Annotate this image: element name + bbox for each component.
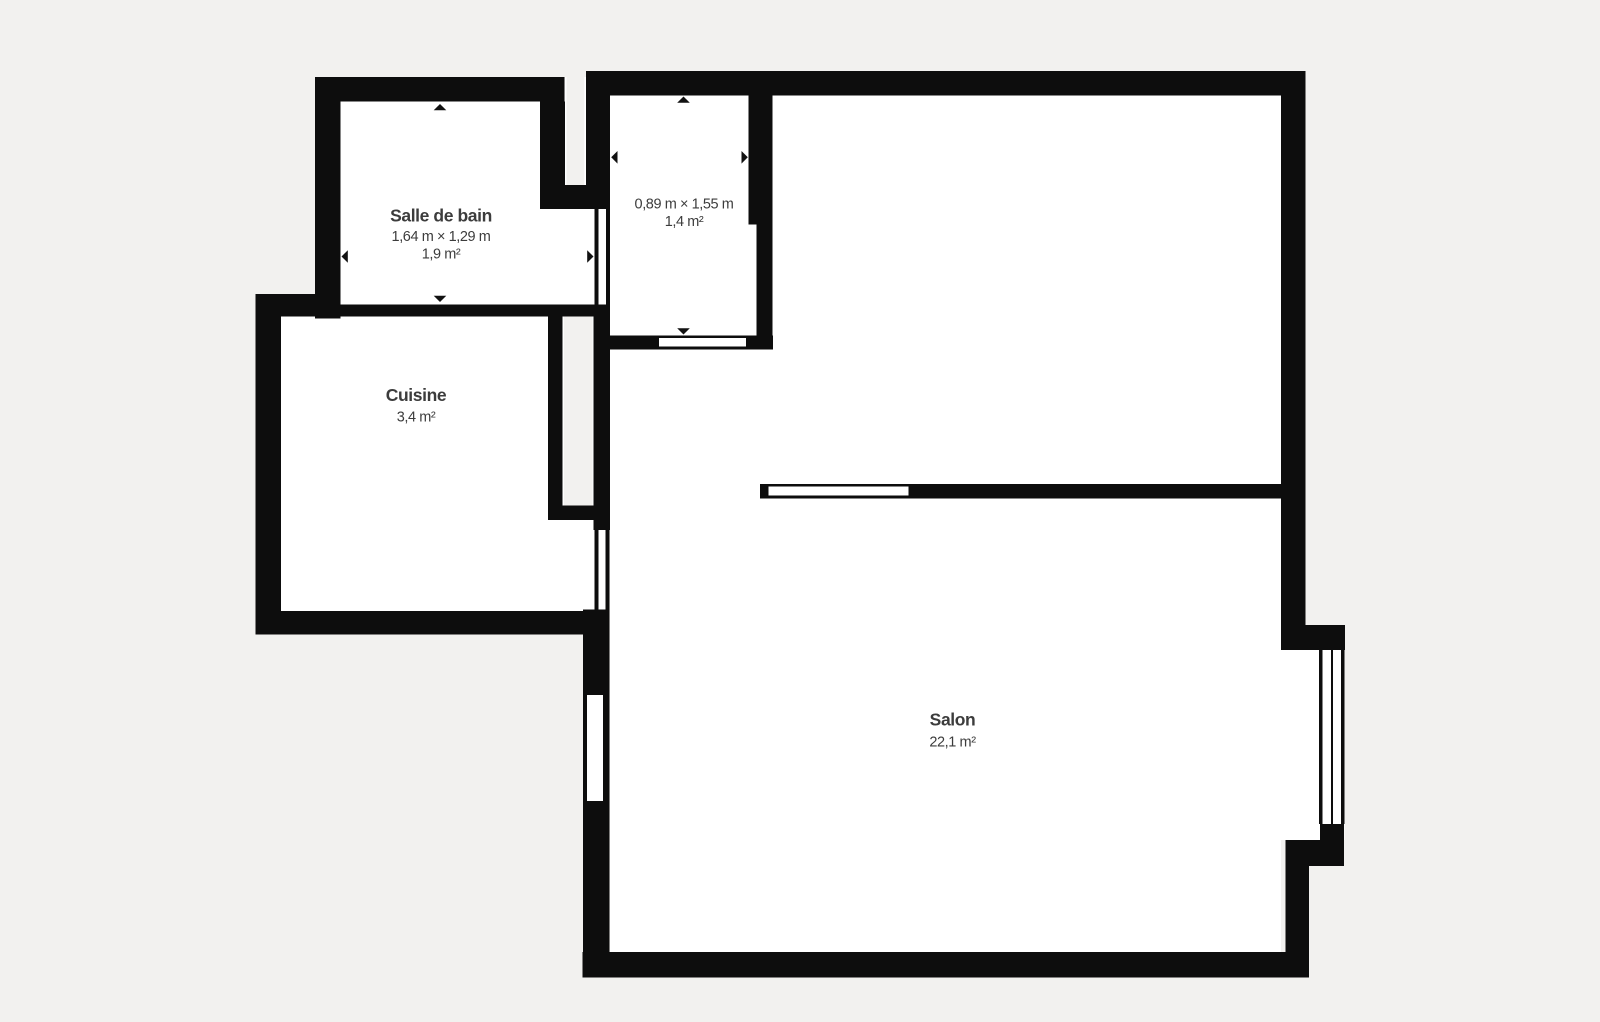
svg-text:1,64 m × 1,29 m: 1,64 m × 1,29 m (392, 229, 491, 245)
svg-text:Cuisine: Cuisine (386, 385, 447, 405)
svg-text:Salon: Salon (930, 710, 976, 730)
svg-text:1,4 m²: 1,4 m² (665, 214, 704, 230)
svg-text:1,9 m²: 1,9 m² (422, 247, 461, 263)
svg-text:3,4 m²: 3,4 m² (397, 410, 436, 426)
svg-text:22,1 m²: 22,1 m² (929, 735, 976, 751)
svg-text:Salle de bain: Salle de bain (390, 206, 492, 226)
svg-text:0,89 m × 1,55 m: 0,89 m × 1,55 m (635, 197, 734, 213)
